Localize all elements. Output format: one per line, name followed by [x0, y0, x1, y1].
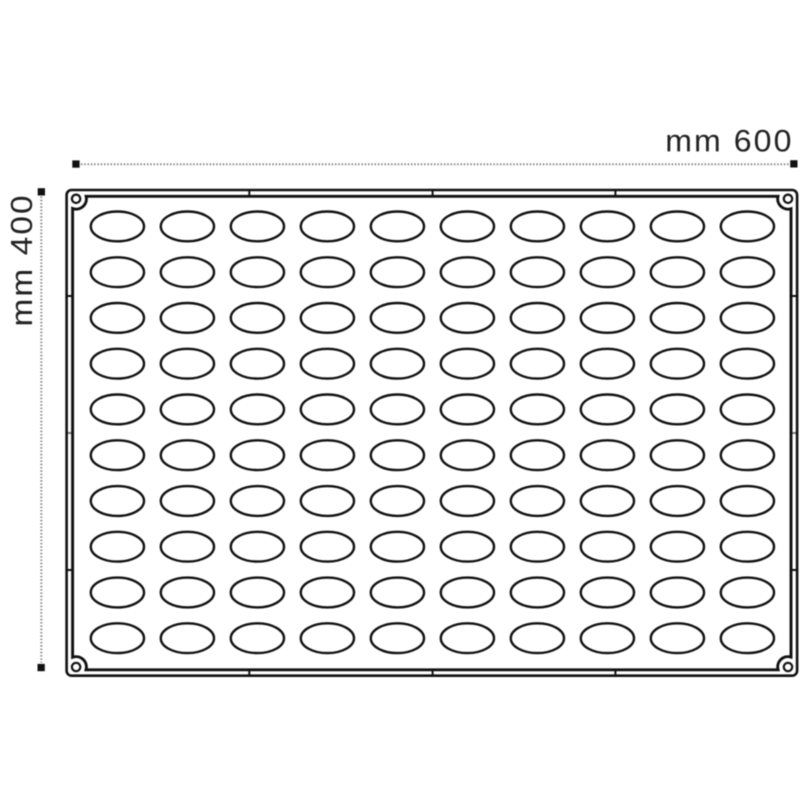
svg-text:mm 400: mm 400 — [4, 193, 39, 326]
svg-text:mm 600: mm 600 — [665, 123, 793, 158]
